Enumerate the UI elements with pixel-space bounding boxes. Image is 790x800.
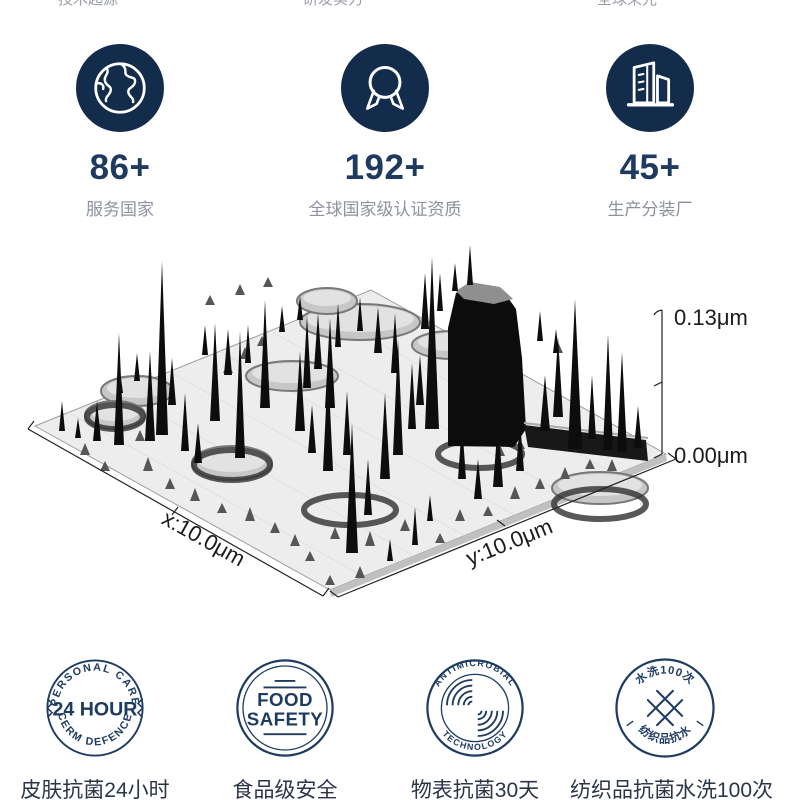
stat-circle bbox=[341, 44, 429, 132]
stat-label: 全球国家级认证资质 bbox=[265, 195, 505, 220]
stat-label: 服务国家 bbox=[0, 195, 240, 220]
badge-food-safety: FOOD SAFETY 食品级安全 bbox=[190, 652, 380, 800]
stat-value: 86+ bbox=[0, 148, 240, 188]
badge-textile-wash: 水洗100次 纺织品抗水 纺织品抗菌水洗100次 bbox=[570, 652, 760, 800]
stat-factories: 45+ 生产分装厂 bbox=[530, 44, 770, 220]
svg-text:24 HOUR: 24 HOUR bbox=[53, 698, 138, 720]
clipped-text-fragment: 技术起源 bbox=[58, 0, 118, 9]
z-axis-line bbox=[654, 310, 662, 458]
svg-text:ANTIMICROBIAL: ANTIMICROBIAL bbox=[432, 658, 518, 688]
z-min-label: 0.00μm bbox=[674, 443, 748, 468]
stat-value: 45+ bbox=[530, 148, 770, 188]
badge-personal-care: PERSONAL CARE CERM DEFENCE 24 HOUR 皮肤抗菌2… bbox=[0, 652, 190, 800]
svg-text:FOOD: FOOD bbox=[257, 689, 313, 710]
afm-plot-svg: 0.13μm 0.00μm x:10.0μm y:10.0μm bbox=[0, 233, 790, 618]
signal-arcs-icon bbox=[447, 680, 503, 736]
stat-service-countries: 86+ 服务国家 bbox=[0, 44, 240, 220]
clipped-text-fragment: 全球荣光 bbox=[597, 0, 657, 9]
antimicrobial-stamp-icon: ANTIMICROBIAL TECHNOLOGY bbox=[419, 652, 531, 764]
textile-wash-stamp-icon: 水洗100次 纺织品抗水 bbox=[609, 652, 721, 764]
stat-value: 192+ bbox=[265, 148, 505, 188]
medal-icon bbox=[357, 60, 413, 116]
stats-row: 86+ 服务国家 192+ 全球国家级认证资质 bbox=[0, 44, 790, 214]
stat-label: 生产分装厂 bbox=[530, 195, 770, 220]
svg-text:SAFETY: SAFETY bbox=[247, 709, 323, 730]
badge-caption: 食品级安全 bbox=[190, 774, 380, 800]
svg-text:纺织品抗水: 纺织品抗水 bbox=[636, 722, 694, 746]
badge-caption: 纺织品抗菌水洗100次 bbox=[570, 774, 760, 800]
stat-circle bbox=[76, 44, 164, 132]
afm-surface-group bbox=[35, 245, 667, 597]
product-detail-section: 技术起源 研发实力 全球荣光 86+ 服务国家 bbox=[0, 0, 790, 800]
food-safety-stamp-icon: FOOD SAFETY bbox=[229, 652, 341, 764]
stat-circle bbox=[606, 44, 694, 132]
stat-certifications: 192+ 全球国家级认证资质 bbox=[265, 44, 505, 220]
z-max-label: 0.13μm bbox=[674, 305, 748, 330]
badge-caption: 物表抗菌30天 bbox=[380, 774, 570, 800]
afm-3d-surface-plot: 0.13μm 0.00μm x:10.0μm y:10.0μm bbox=[0, 233, 790, 618]
weave-hash-icon bbox=[640, 683, 690, 733]
24-hour-stamp-icon: PERSONAL CARE CERM DEFENCE 24 HOUR bbox=[39, 652, 151, 764]
badge-caption: 皮肤抗菌24小时 bbox=[0, 774, 190, 800]
badge-antimicrobial: ANTIMICROBIAL TECHNOLOGY 物表抗菌30天 bbox=[380, 652, 570, 800]
globe-icon bbox=[92, 60, 148, 116]
clipped-text-fragment: 研发实力 bbox=[303, 0, 363, 9]
building-icon bbox=[622, 60, 678, 116]
